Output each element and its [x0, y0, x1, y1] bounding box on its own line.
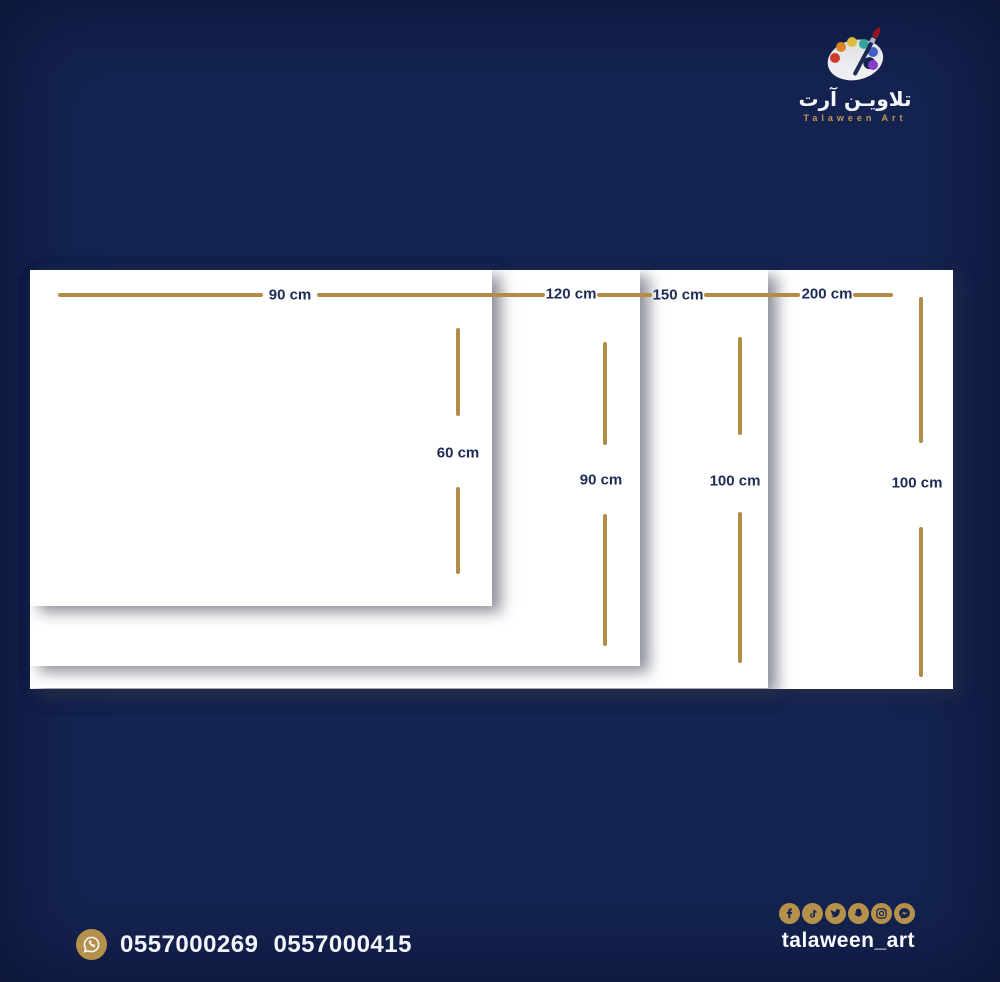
- height-label-60cm: 60 cm: [437, 445, 480, 462]
- height-line-segment: [919, 527, 923, 677]
- twitter-icon: [825, 903, 846, 924]
- height-line-segment: [456, 328, 460, 416]
- tiktok-icon: [802, 903, 823, 924]
- width-line-segment: [853, 293, 893, 297]
- width-line-segment: [317, 293, 545, 297]
- width-label-90cm: 90 cm: [269, 287, 312, 304]
- width-line-segment: [58, 293, 263, 297]
- social-icon-row: [779, 903, 915, 924]
- width-line-segment: [704, 293, 800, 297]
- height-line-segment: [738, 512, 742, 663]
- instagram-icon: [871, 903, 892, 924]
- instagram-handle: talaween_art: [779, 929, 915, 953]
- messenger-icon: [894, 903, 915, 924]
- facebook-icon: [779, 903, 800, 924]
- height-label-100cm-a: 100 cm: [710, 473, 761, 490]
- height-line-segment: [738, 337, 742, 435]
- whatsapp-icon: [76, 929, 107, 960]
- height-line-segment: [456, 487, 460, 574]
- height-line-segment: [919, 297, 923, 443]
- brand-name-arabic: تلاويـن آرت: [790, 88, 920, 110]
- phone-number-secondary: 0557000415: [273, 931, 411, 959]
- width-label-120cm: 120 cm: [546, 286, 597, 303]
- width-label-150cm: 150 cm: [653, 287, 704, 304]
- height-line-segment: [603, 514, 607, 646]
- social-block: talaween_art: [779, 903, 915, 953]
- brand-logo: تلاويـن آرت Talaween Art: [790, 22, 920, 123]
- size-panel-90x60: [30, 270, 492, 606]
- brand-name-english: Talaween Art: [790, 113, 920, 123]
- poster-canvas: تلاويـن آرت Talaween Art 90 cm 120 cm 15…: [0, 0, 1000, 982]
- width-label-200cm: 200 cm: [802, 286, 853, 303]
- width-line-segment: [597, 293, 652, 297]
- contact-row: 0557000269 0557000415: [76, 929, 412, 960]
- height-label-90cm: 90 cm: [580, 472, 623, 489]
- snapchat-icon: [848, 903, 869, 924]
- palette-logo-icon: [818, 22, 892, 86]
- height-line-segment: [603, 342, 607, 445]
- height-label-100cm-b: 100 cm: [892, 475, 943, 492]
- phone-number-primary: 0557000269: [120, 931, 258, 959]
